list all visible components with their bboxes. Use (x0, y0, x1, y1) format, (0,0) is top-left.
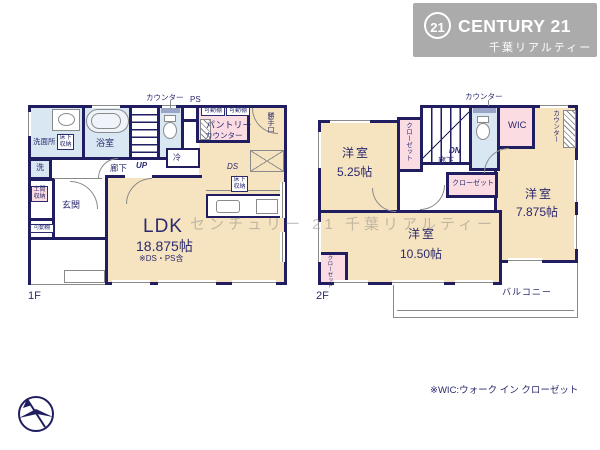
f2-counter-top-label: カウンター (465, 93, 503, 102)
f1-washroom-label: 洗面所 (33, 138, 56, 147)
f1-up-label: UP (136, 161, 147, 170)
f2-room2-area-label: 7.875帖 (516, 206, 558, 220)
f2-window-south-4 (508, 258, 542, 263)
f2-toilet-counter (473, 108, 496, 113)
f2-room1-area-label: 5.25帖 (337, 166, 372, 180)
f1-toilet-tank-icon (164, 115, 176, 122)
f1-wall-entrance (52, 237, 108, 240)
f1-underfloor-storage-1: 床下収納 (57, 134, 74, 150)
f2-closet1-label: クローゼット (404, 122, 411, 161)
f1-wall-ldk-left (105, 175, 108, 285)
f2-window-south-3 (455, 280, 493, 285)
f1-hall-label: 廊下 (110, 164, 127, 174)
f1-entrance-step-line (54, 178, 102, 179)
f1-pantry-label: パントリー (206, 120, 251, 130)
f2-toilet-bowl-icon (476, 123, 490, 140)
f1-genkan-label: 玄関 (62, 200, 80, 210)
f1-doma-label: 土間収納 (31, 186, 48, 202)
f1-backdoor-step (250, 150, 284, 172)
f2-balcony-label: バルコニー (502, 287, 552, 297)
f1-stairs (129, 105, 160, 160)
brand-name: CENTURY 21 (458, 16, 571, 37)
f2-hall-label: 廊下 (438, 156, 454, 165)
f1-toilet-counter (161, 108, 180, 113)
f1-fridge-label: 冷 (173, 153, 181, 162)
f2-wic-label: WIC (508, 121, 526, 132)
f1-wall-hall-b (152, 175, 202, 178)
f2-window-east-1 (574, 160, 579, 202)
f1-ldk-note-label: ※DS・PS含 (139, 254, 184, 263)
f2-counter-hatch (563, 110, 576, 148)
f1-floor-label: 1F (28, 290, 41, 302)
f1-fridge-space (166, 148, 200, 168)
f1-shelf-label-3: 可動棚 (30, 224, 54, 233)
f2-room3-area-label: 10.50帖 (400, 248, 442, 262)
f2-window-west-1 (316, 132, 321, 168)
f1-vanity-sink-icon (58, 113, 75, 126)
f2-window-south-2 (392, 280, 444, 285)
f1-bathtub-inner (91, 113, 121, 129)
f2-toilet-tank-icon (477, 116, 489, 123)
f1-stove-icon (256, 199, 278, 214)
f1-window-south-3 (232, 280, 276, 285)
f2-window-east-2 (574, 215, 579, 249)
f1-porch-step (64, 270, 105, 283)
f1-ds-label: DS (227, 162, 238, 171)
watermark: センチュリー 21 千葉リアルティー (190, 213, 496, 234)
f1-washer-label: 洗 (36, 163, 44, 172)
f1-pantry-counter-label: カウンター (205, 132, 243, 141)
f2-counter-leader (488, 100, 489, 106)
century21-logo: 21 CENTURY 21 千葉リアルティー (413, 3, 597, 57)
f1-ps-label: PS (190, 95, 201, 104)
f2-dn-label: DN (449, 146, 461, 155)
f1-window-toilet (162, 103, 176, 108)
f1-underfloor-storage-2: 床下収納 (231, 176, 248, 192)
f1-counter-label: カウンター (146, 94, 184, 103)
f1-counter-leader (170, 101, 171, 108)
floorplan-canvas: 21 CENTURY 21 千葉リアルティー 可動棚 可動棚 床下収納 土間収納… (0, 0, 600, 450)
f1-shelf-label-1: 可動棚 (201, 107, 225, 116)
f1-ldk-area-label: 18.875帖 (136, 238, 193, 254)
f2-balcony-rail (397, 310, 574, 311)
f1-window-left (26, 112, 31, 136)
f2-closet3-label: クローゼット (326, 255, 332, 288)
f1-window-south-2 (158, 280, 216, 285)
wic-footnote: ※WIC:ウォーク イン クローゼット (430, 386, 578, 397)
f2-closet2-label: クローゼット (452, 180, 494, 188)
f1-bath-label: 浴室 (96, 138, 114, 148)
f1-toilet-bowl-icon (163, 122, 177, 139)
f1-window-bath (92, 103, 120, 108)
f1-window-south-1 (112, 280, 150, 285)
f2-window-north-2 (540, 103, 568, 108)
f2-window-south-1 (334, 280, 368, 285)
f1-kitchen-sink-icon (216, 200, 240, 213)
f1-porch-edge (31, 284, 105, 285)
f1-backdoor-label: 勝手口 (266, 112, 274, 133)
f2-room1-label: 洋室 (342, 147, 370, 161)
f1-ldk-label: LDK (143, 216, 183, 238)
f1-window-east-2 (280, 232, 285, 262)
f2-counter-right-label: カウンター (551, 110, 558, 143)
f2-window-north-1 (330, 118, 370, 123)
compass-icon (12, 390, 60, 438)
f2-room2-label: 洋室 (525, 188, 553, 202)
brand-subtitle: 千葉リアルティー (489, 39, 592, 55)
century21-seal-icon: 21 (424, 12, 451, 39)
f2-floor-label: 2F (316, 290, 329, 302)
f1-shelf-label-2: 可動棚 (226, 107, 250, 116)
